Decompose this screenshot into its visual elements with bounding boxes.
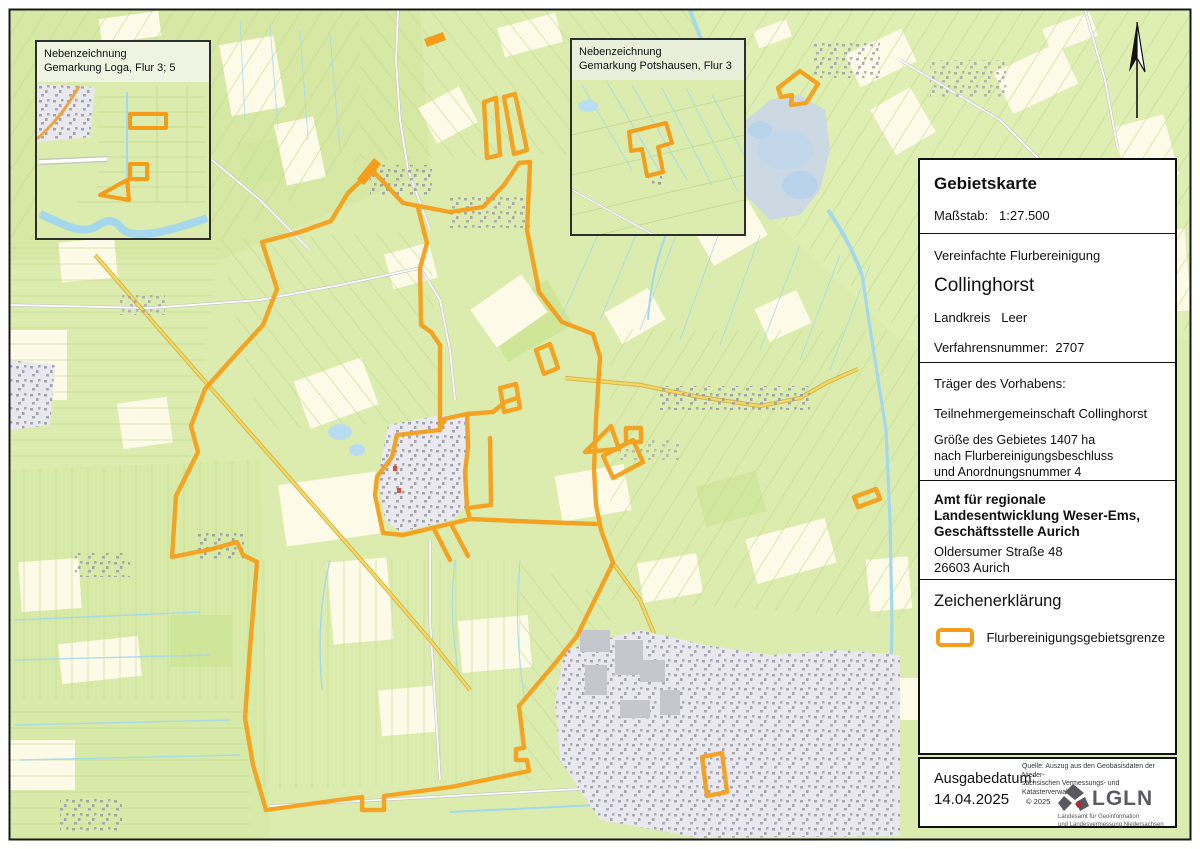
- inset-loga: Nebenzeichnung Gemarkung Loga, Flur 3; 5: [35, 40, 211, 240]
- legend-heading: Zeichenerklärung: [934, 592, 1062, 611]
- inset-potshausen-label: Nebenzeichnung Gemarkung Potshausen, Flu…: [579, 45, 732, 73]
- lgln-subtitle: Landesamt für Geoinformation und Landesv…: [1058, 814, 1164, 829]
- number-label: Verfahrensnummer:: [934, 340, 1048, 355]
- lgln-sub2: und Landesvermessung Niedersachsen: [1058, 822, 1164, 830]
- carrier-heading: Träger des Vorhabens:: [934, 376, 1066, 391]
- area-line3: und Anordnungsnummer 4: [934, 464, 1113, 480]
- district-row: Landkreis Leer: [934, 310, 1027, 325]
- boundary-legend-swatch: [936, 628, 974, 647]
- procedure-name: Collinghorst: [934, 275, 1034, 297]
- procedure-type: Vereinfachte Flurbereinigung: [934, 248, 1100, 263]
- office-street: Oldersumer Straße 48: [934, 544, 1063, 560]
- number-row: Verfahrensnummer: 2707: [934, 340, 1084, 355]
- legend-item-label: Flurbereinigungsgebietsgrenze: [986, 630, 1165, 645]
- inset-loga-line1: Nebenzeichnung: [44, 47, 175, 61]
- date-label: Ausgabedatum:: [934, 771, 1036, 787]
- inset-loga-label: Nebenzeichnung Gemarkung Loga, Flur 3; 5: [44, 47, 175, 75]
- inset-potshausen-line2: Gemarkung Potshausen, Flur 3: [579, 59, 732, 73]
- map-sheet: Nebenzeichnung Gemarkung Loga, Flur 3; 5…: [0, 0, 1200, 849]
- number-value: 2707: [1055, 340, 1084, 355]
- scale-value: 1:27.500: [999, 208, 1050, 223]
- copyright: © 2025: [1026, 797, 1050, 806]
- divider: [920, 362, 1175, 363]
- area-line1: Größe des Gebietes 1407 ha: [934, 432, 1113, 448]
- title-panel: Gebietskarte Maßstab: 1:27.500 Vereinfac…: [918, 158, 1177, 755]
- source-line1: Quelle: Auszug aus den Geobasisdaten der…: [1022, 763, 1174, 780]
- inset-potshausen-line1: Nebenzeichnung: [579, 45, 732, 59]
- divider: [920, 233, 1175, 234]
- date-value: 14.04.2025: [934, 791, 1009, 808]
- office-address: Oldersumer Straße 48 26603 Aurich: [934, 544, 1063, 576]
- page-title: Gebietskarte: [934, 174, 1037, 194]
- area-info: Größe des Gebietes 1407 ha nach Flurbere…: [934, 432, 1113, 480]
- office-line2: Landesentwicklung Weser-Ems,: [934, 508, 1140, 524]
- lgln-logo-text: LGLN: [1092, 787, 1153, 811]
- lgln-sub1: Landesamt für Geoinformation: [1058, 814, 1164, 822]
- scale-label: Maßstab:: [934, 208, 988, 223]
- district-value: Leer: [1001, 310, 1027, 325]
- inset-loga-line2: Gemarkung Loga, Flur 3; 5: [44, 61, 175, 75]
- inset-potshausen: Nebenzeichnung Gemarkung Potshausen, Flu…: [570, 38, 746, 236]
- office-line1: Amt für regionale: [934, 492, 1140, 508]
- divider: [920, 579, 1175, 580]
- legend-item-row: Flurbereinigungsgebietsgrenze: [936, 628, 1165, 652]
- office-line3: Geschäftsstelle Aurich: [934, 524, 1140, 540]
- footer-box: Ausgabedatum: 14.04.2025 Quelle: Auszug …: [918, 757, 1177, 828]
- office-name: Amt für regionale Landesentwicklung Wese…: [934, 492, 1140, 540]
- scale-row: Maßstab: 1:27.500: [934, 208, 1050, 223]
- area-line2: nach Flurbereinigungsbeschluss: [934, 448, 1113, 464]
- district-label: Landkreis: [934, 310, 990, 325]
- divider: [920, 480, 1175, 481]
- carrier-name: Teilnehmergemeinschaft Collinghorst: [934, 406, 1147, 421]
- office-city: 26603 Aurich: [934, 560, 1063, 576]
